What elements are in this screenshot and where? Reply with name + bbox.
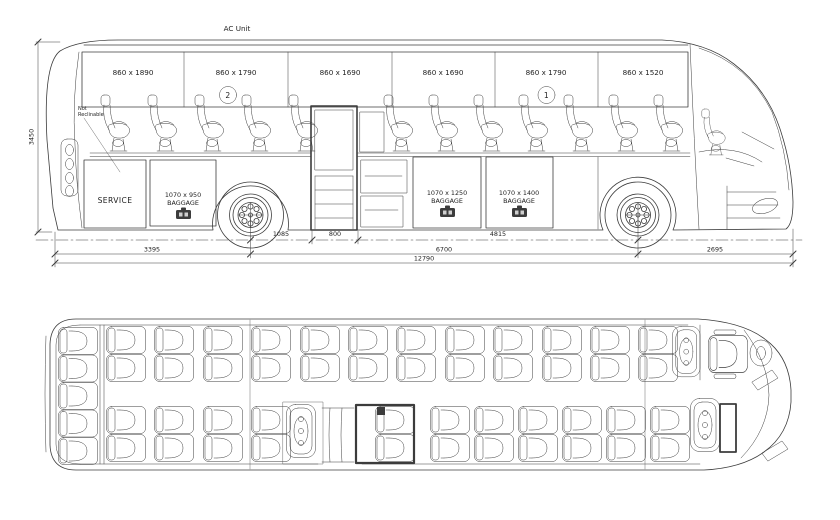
baggage-door-3: 1070 x 1400 BAGGAGE [486,157,553,228]
seat-icon [204,327,243,354]
steering-wheel-icon [750,340,772,366]
seat-icon [563,435,602,462]
seat-icon [252,407,291,434]
door-side-seat-rows [107,407,690,462]
window-band: 860 x 1890 860 x 1790 860 x 1690 860 x 1… [82,52,688,107]
baggage-door-1: 1070 x 950 BAGGAGE [150,160,216,226]
seat-icon [431,435,470,462]
svg-text:1070 x 950: 1070 x 950 [165,191,201,199]
wiper-lines [726,132,774,166]
seat-icon [107,327,146,354]
seat-icon [204,355,243,382]
dim-door-width: 800 [329,230,341,238]
seat-icon [148,95,177,151]
baggage-icon [512,206,527,218]
svg-text:BAGGAGE: BAGGAGE [503,197,535,205]
rear-bumper-line [45,336,46,452]
baggage-icon [176,208,191,220]
door-control-marker [377,407,385,415]
dim-front-overhang: 2695 [707,246,723,254]
dim-wheelbase: 6700 [436,246,452,254]
svg-text:1070 x 1250: 1070 x 1250 [427,189,467,197]
plan-outline [50,319,791,470]
seat-icon [252,435,291,462]
passenger-seats-side [101,95,725,155]
dashboard-line [699,150,762,162]
baggage-door-2: 1070 x 1250 BAGGAGE [413,157,481,228]
seat-icon [242,95,271,151]
seat-icon [155,435,194,462]
floor-plan [45,319,791,470]
seat-icon [195,95,224,151]
seat-icon [107,435,146,462]
fold-seat-icon [691,399,720,452]
mid-door-platform [356,405,414,463]
ac-unit-label: AC Unit [224,24,251,33]
seat-icon [607,407,646,434]
window-badge-2: 2 [220,87,237,104]
seat-icon [59,355,98,382]
headlight [750,195,779,216]
svg-text:BAGGAGE: BAGGAGE [431,197,463,205]
mid-entrance-door [311,106,357,230]
window-label-3: 860 x 1690 [320,68,361,77]
seat-icon [494,327,533,354]
tail-light-cluster [61,139,78,196]
seat-icon [607,435,646,462]
seat-icon [446,355,485,382]
svg-text:BAGGAGE: BAGGAGE [167,199,199,207]
bus-dimension-drawing-page: AC Unit 860 x 1890 860 x 1790 860 x 1690… [0,0,840,520]
seat-icon [59,410,98,437]
seat-icon [519,95,548,151]
window-label-5: 860 x 1790 [526,68,567,77]
dim-door-to-front-axle: 4815 [490,230,506,238]
window-label-6: 860 x 1520 [623,68,664,77]
seat-icon [349,355,388,382]
left-side-seat-rows [107,327,678,382]
seat-icon [494,355,533,382]
dim-height: 3450 [28,129,36,145]
seat-icon [204,407,243,434]
seat-icon [651,435,690,462]
seat-icon [519,435,558,462]
dim-axle-to-door: 1085 [273,230,289,238]
seat-icon [563,407,602,434]
rear-bench-seats [59,328,98,465]
seat-icon [639,327,678,354]
seat-icon [289,95,318,151]
seat-icon [155,407,194,434]
seat-icon [155,355,194,382]
floor-line [90,153,690,157]
seat-icon [609,95,638,151]
seat-icon [301,327,340,354]
side-view: AC Unit 860 x 1890 860 x 1790 860 x 1690… [46,24,793,248]
seat-icon [519,407,558,434]
window-label-2: 860 x 1790 [216,68,257,77]
seat-icon [591,355,630,382]
mid-door-stepwell [322,408,354,462]
bus-dimension-drawing: AC Unit 860 x 1890 860 x 1790 860 x 1690… [0,0,840,520]
driver-seat-icon [709,336,748,373]
dim-rear-overhang: 3395 [144,246,160,254]
galley-units [360,112,407,227]
window-badge-1: 1 [538,87,555,104]
seat-icon [475,407,514,434]
seat-icon [107,407,146,434]
window-label-1: 860 x 1890 [113,68,154,77]
seat-icon [431,407,470,434]
svg-text:1: 1 [544,91,549,100]
svg-text:SERVICE: SERVICE [98,196,133,205]
baggage-icon [440,206,455,218]
front-door-frame [720,404,736,452]
front-end [690,44,789,229]
fold-seat-icon [287,405,316,458]
svg-text:1070 x 1400: 1070 x 1400 [499,189,539,197]
seat-icon [155,327,194,354]
seat-icon [654,95,683,151]
rear-end [61,52,82,228]
seat-icon [397,327,436,354]
dim-overall-length: 12790 [414,255,434,263]
seat-icon [204,435,243,462]
seat-icon [639,355,678,382]
seat-icon [397,355,436,382]
seat-icon [349,327,388,354]
seat-icon [446,327,485,354]
front-door-steps [727,186,780,229]
seat-icon [429,95,458,151]
seat-icon [107,355,146,382]
window-label-4: 860 x 1690 [423,68,464,77]
svg-text:2: 2 [225,91,230,100]
seat-icon [543,327,582,354]
seat-icon [59,328,98,355]
seat-icon [252,327,291,354]
seat-icon [59,383,98,410]
seat-icon [564,95,593,151]
seat-icon [651,407,690,434]
seat-icon [376,435,415,462]
seat-icon [543,355,582,382]
seat-icon [475,435,514,462]
svg-text:Reclinable: Reclinable [78,112,104,118]
seat-icon [384,95,413,151]
service-door: SERVICE [84,160,146,228]
seat-icon [101,95,130,151]
seat-icon [474,95,503,151]
driver-seat-icon [702,109,725,155]
seat-icon [591,327,630,354]
seat-icon [252,355,291,382]
seat-icon [301,355,340,382]
